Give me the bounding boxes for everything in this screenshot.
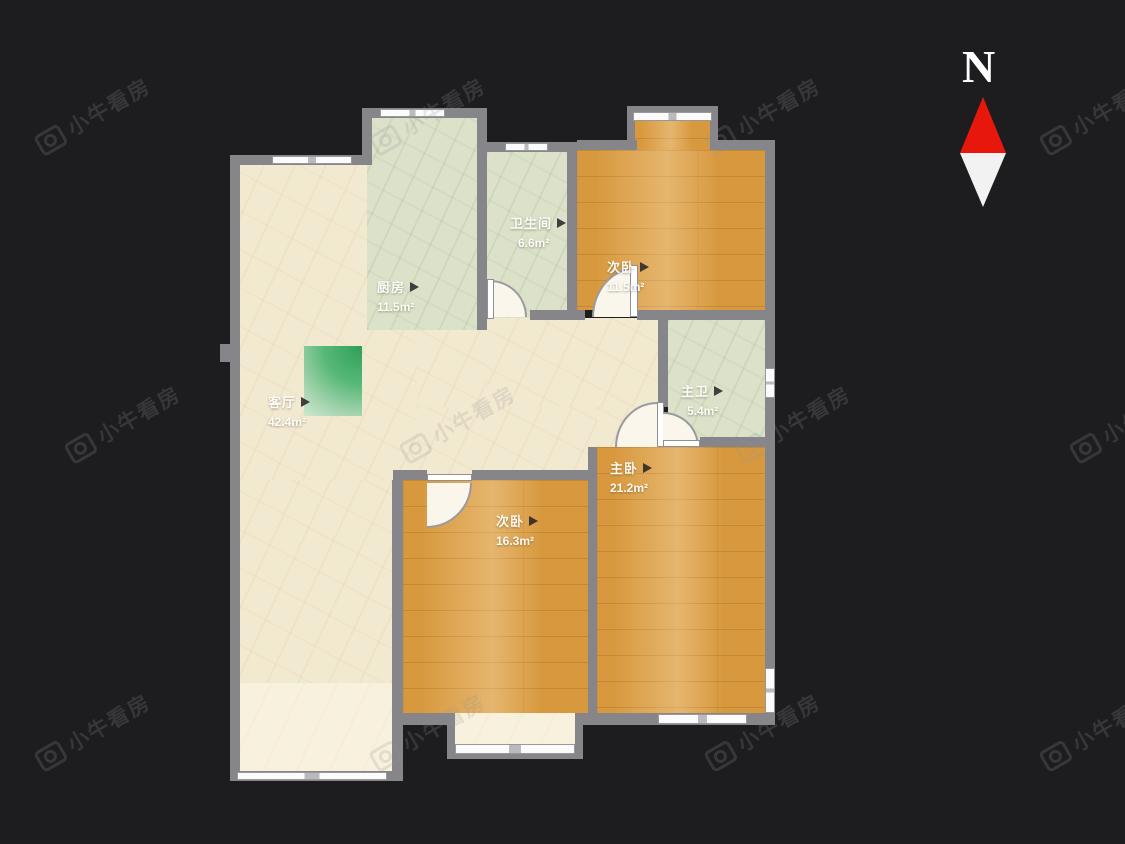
wall <box>472 470 597 480</box>
wall <box>588 447 597 713</box>
room-label-living: 客厅 42.4m² <box>268 392 310 429</box>
window <box>272 156 352 164</box>
watermark-text: 小牛看房 <box>61 70 156 142</box>
room-label-bedroom-south: 次卧 16.3m² <box>496 511 538 548</box>
watermark-tile: 小牛看房 <box>1036 686 1125 775</box>
wall <box>530 310 585 320</box>
watermark-tile: 小牛看房 <box>31 70 156 159</box>
living-room-floor-lower <box>237 683 392 773</box>
room-arrow-icon <box>529 516 538 526</box>
room-label-bedroom-north: 次卧 11.5m² <box>607 257 649 294</box>
wall <box>765 140 775 725</box>
living-room-floor <box>237 480 393 683</box>
wall <box>447 713 455 758</box>
room-area: 11.5m² <box>607 280 649 294</box>
window <box>658 714 747 724</box>
wall <box>575 713 583 758</box>
wall <box>658 318 668 407</box>
wall <box>230 155 240 781</box>
camera-icon <box>33 123 69 157</box>
hallway-floor <box>487 318 668 407</box>
window <box>765 368 775 398</box>
watermark-text: 小牛看房 <box>1096 378 1125 450</box>
wall <box>393 470 427 480</box>
camera-icon <box>1038 739 1074 773</box>
north-label: N <box>962 40 995 93</box>
wall <box>567 142 577 318</box>
room-label-bathroom: 卫生间 6.6m² <box>510 213 566 250</box>
compass-needle-north-icon <box>960 97 1006 153</box>
room-arrow-icon <box>410 282 419 292</box>
room-arrow-icon <box>643 463 652 473</box>
room-label-kitchen: 厨房 11.5m² <box>377 277 419 314</box>
watermark-tile: 小牛看房 <box>31 686 156 775</box>
window <box>380 109 445 117</box>
watermark-tile: 小牛看房 <box>1036 70 1125 159</box>
south-bay-floor <box>455 713 575 744</box>
room-area: 5.4m² <box>687 404 723 418</box>
room-arrow-icon <box>640 262 649 272</box>
window <box>633 112 712 121</box>
room-name: 次卧 <box>607 257 635 276</box>
camera-icon <box>33 739 69 773</box>
room-area: 6.6m² <box>518 236 566 250</box>
window <box>455 744 575 754</box>
watermark-tile: 小牛看房 <box>61 378 186 467</box>
wall <box>220 344 230 362</box>
room-area: 11.5m² <box>377 300 419 314</box>
floorplan-viewer: 客厅 42.4m² 厨房 11.5m² 卫生间 6.6m² 次卧 11.5m² … <box>0 0 1125 844</box>
camera-icon <box>703 739 739 773</box>
camera-icon <box>1038 123 1074 157</box>
wall <box>477 108 487 330</box>
room-label-master-bath: 主卫 5.4m² <box>681 381 723 418</box>
room-arrow-icon <box>557 218 566 228</box>
room-area: 16.3m² <box>496 534 538 548</box>
window <box>505 143 548 151</box>
hallway-floor <box>417 330 487 407</box>
wall <box>700 437 775 447</box>
camera-icon <box>63 431 99 465</box>
north-compass: N <box>940 40 1030 220</box>
room-name: 主卫 <box>681 381 709 400</box>
room-arrow-icon <box>714 386 723 396</box>
room-name: 卫生间 <box>510 213 552 232</box>
watermark-text: 小牛看房 <box>1066 70 1125 142</box>
room-name: 主卧 <box>610 458 638 477</box>
wall <box>392 480 403 781</box>
room-name: 客厅 <box>268 392 296 411</box>
room-area: 21.2m² <box>610 481 652 495</box>
compass-needle-south-icon <box>960 153 1006 207</box>
window <box>765 668 775 713</box>
watermark-text: 小牛看房 <box>1066 686 1125 758</box>
watermark-text: 小牛看房 <box>731 70 826 142</box>
entry-door-fan <box>304 346 362 416</box>
wall <box>393 713 455 725</box>
watermark-text: 小牛看房 <box>61 686 156 758</box>
room-name: 次卧 <box>496 511 524 530</box>
door-leaf <box>663 440 700 447</box>
watermark-text: 小牛看房 <box>91 378 186 450</box>
camera-icon <box>1068 431 1104 465</box>
door-leaf <box>487 279 494 319</box>
room-arrow-icon <box>301 397 310 407</box>
watermark-text: 小牛看房 <box>761 378 856 450</box>
room-label-master-bedroom: 主卧 21.2m² <box>610 458 652 495</box>
door-leaf <box>427 474 472 481</box>
room-area: 42.4m² <box>268 415 310 429</box>
watermark-tile: 小牛看房 <box>1066 378 1125 467</box>
window <box>237 772 387 780</box>
room-name: 厨房 <box>377 277 405 296</box>
